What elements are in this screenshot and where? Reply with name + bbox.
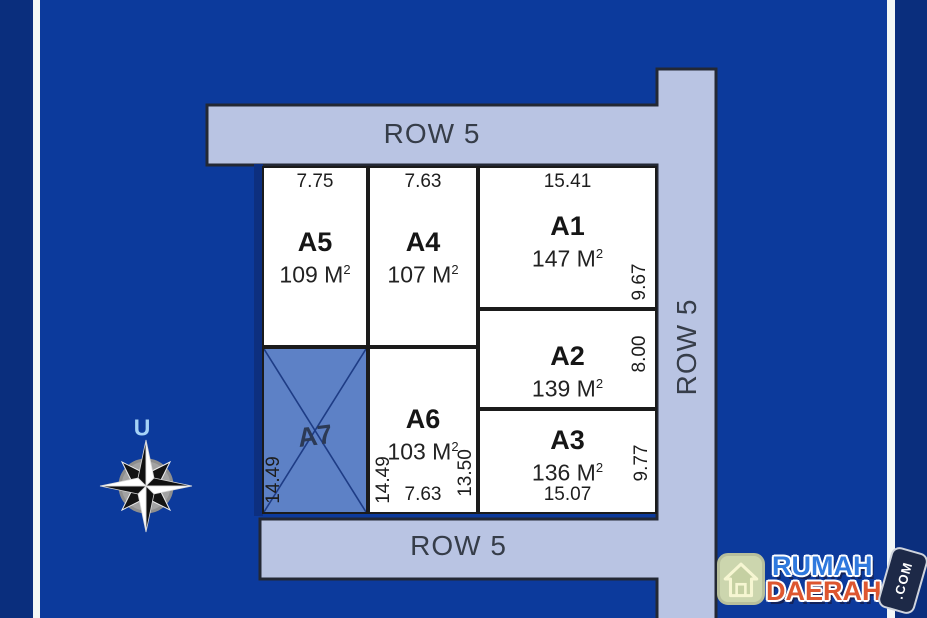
road-label-bottom: ROW 5 — [260, 517, 657, 575]
dimension-label: 9.77 — [631, 445, 653, 482]
plot-block: 15.41 A1 147 M2 A2 139 M2 A3 136 M2 15.0… — [262, 166, 657, 514]
road-label-right: ROW 5 — [671, 299, 703, 396]
dimension-label: 9.67 — [629, 264, 651, 301]
dimension-label: 14.49 — [373, 456, 395, 504]
brand-logo: RUMAH DAERAH .COM — [710, 545, 927, 618]
logo-com-badge: .COM — [876, 545, 927, 616]
dimension-label: 7.75 — [264, 171, 366, 193]
dimension-label: 7.63 — [370, 171, 476, 193]
site-plan-canvas: ROW 5 ROW 5 ROW 5 15.41 A1 147 M2 A2 139… — [0, 0, 927, 618]
plot-area: 139 M2 — [480, 370, 655, 403]
logo-word-daerah: DAERAH — [766, 576, 882, 607]
plot-area: 107 M2 — [370, 256, 476, 289]
house-icon — [717, 553, 765, 605]
plot-A4: 7.63 A4 107 M2 — [368, 166, 478, 347]
compass-rose-icon — [96, 436, 196, 536]
plot-A5: 7.75 A5 109 M2 — [262, 166, 368, 347]
plot-name: A3 — [480, 426, 655, 454]
plot-name: A6 — [370, 405, 476, 433]
plot-area: 136 M2 — [480, 454, 655, 487]
dimension-label: 13.50 — [455, 449, 477, 497]
plot-name: A5 — [264, 228, 366, 256]
dimension-label: 8.00 — [629, 336, 651, 373]
dimension-label: 15.41 — [480, 171, 655, 193]
plot-name: A1 — [480, 212, 655, 240]
plot-name: A4 — [370, 228, 476, 256]
dimension-label: 15.07 — [480, 484, 655, 506]
plot-area: 109 M2 — [264, 256, 366, 289]
road-label-top: ROW 5 — [207, 105, 657, 163]
dimension-label: 14.49 — [263, 456, 285, 504]
